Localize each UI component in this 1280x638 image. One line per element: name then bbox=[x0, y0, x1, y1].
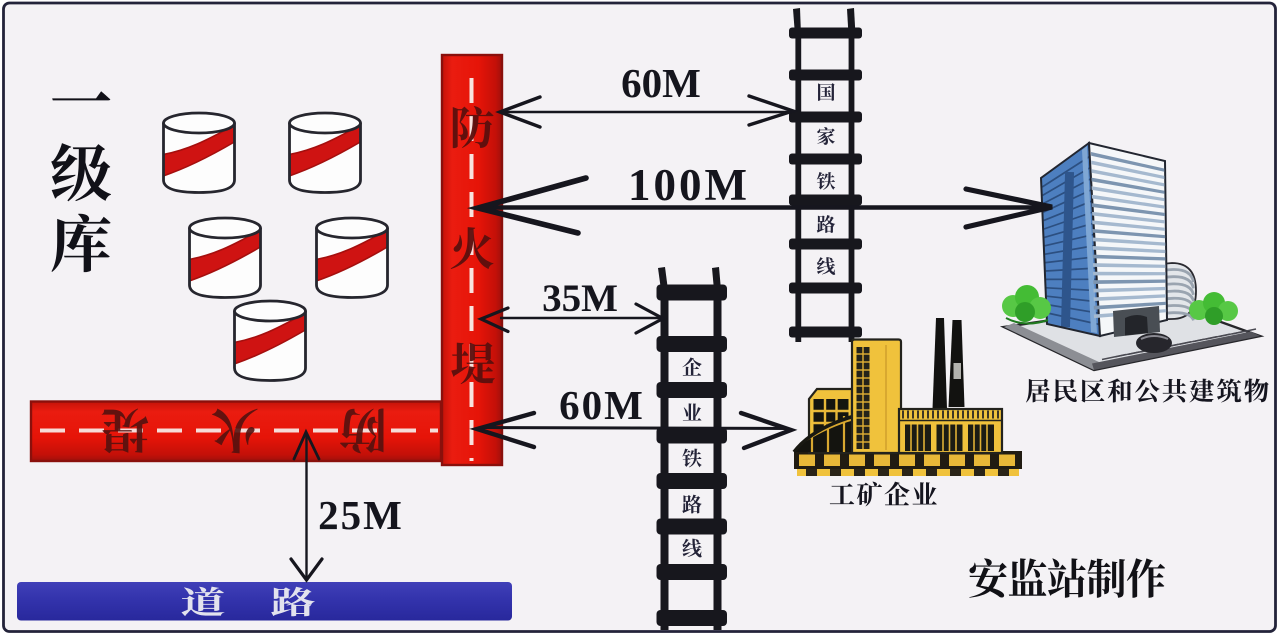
svg-text:25M: 25M bbox=[318, 492, 404, 538]
svg-text:100M: 100M bbox=[628, 160, 750, 210]
svg-text:35M: 35M bbox=[542, 277, 618, 320]
svg-text:60M: 60M bbox=[559, 382, 645, 428]
svg-text:60M: 60M bbox=[621, 60, 701, 106]
